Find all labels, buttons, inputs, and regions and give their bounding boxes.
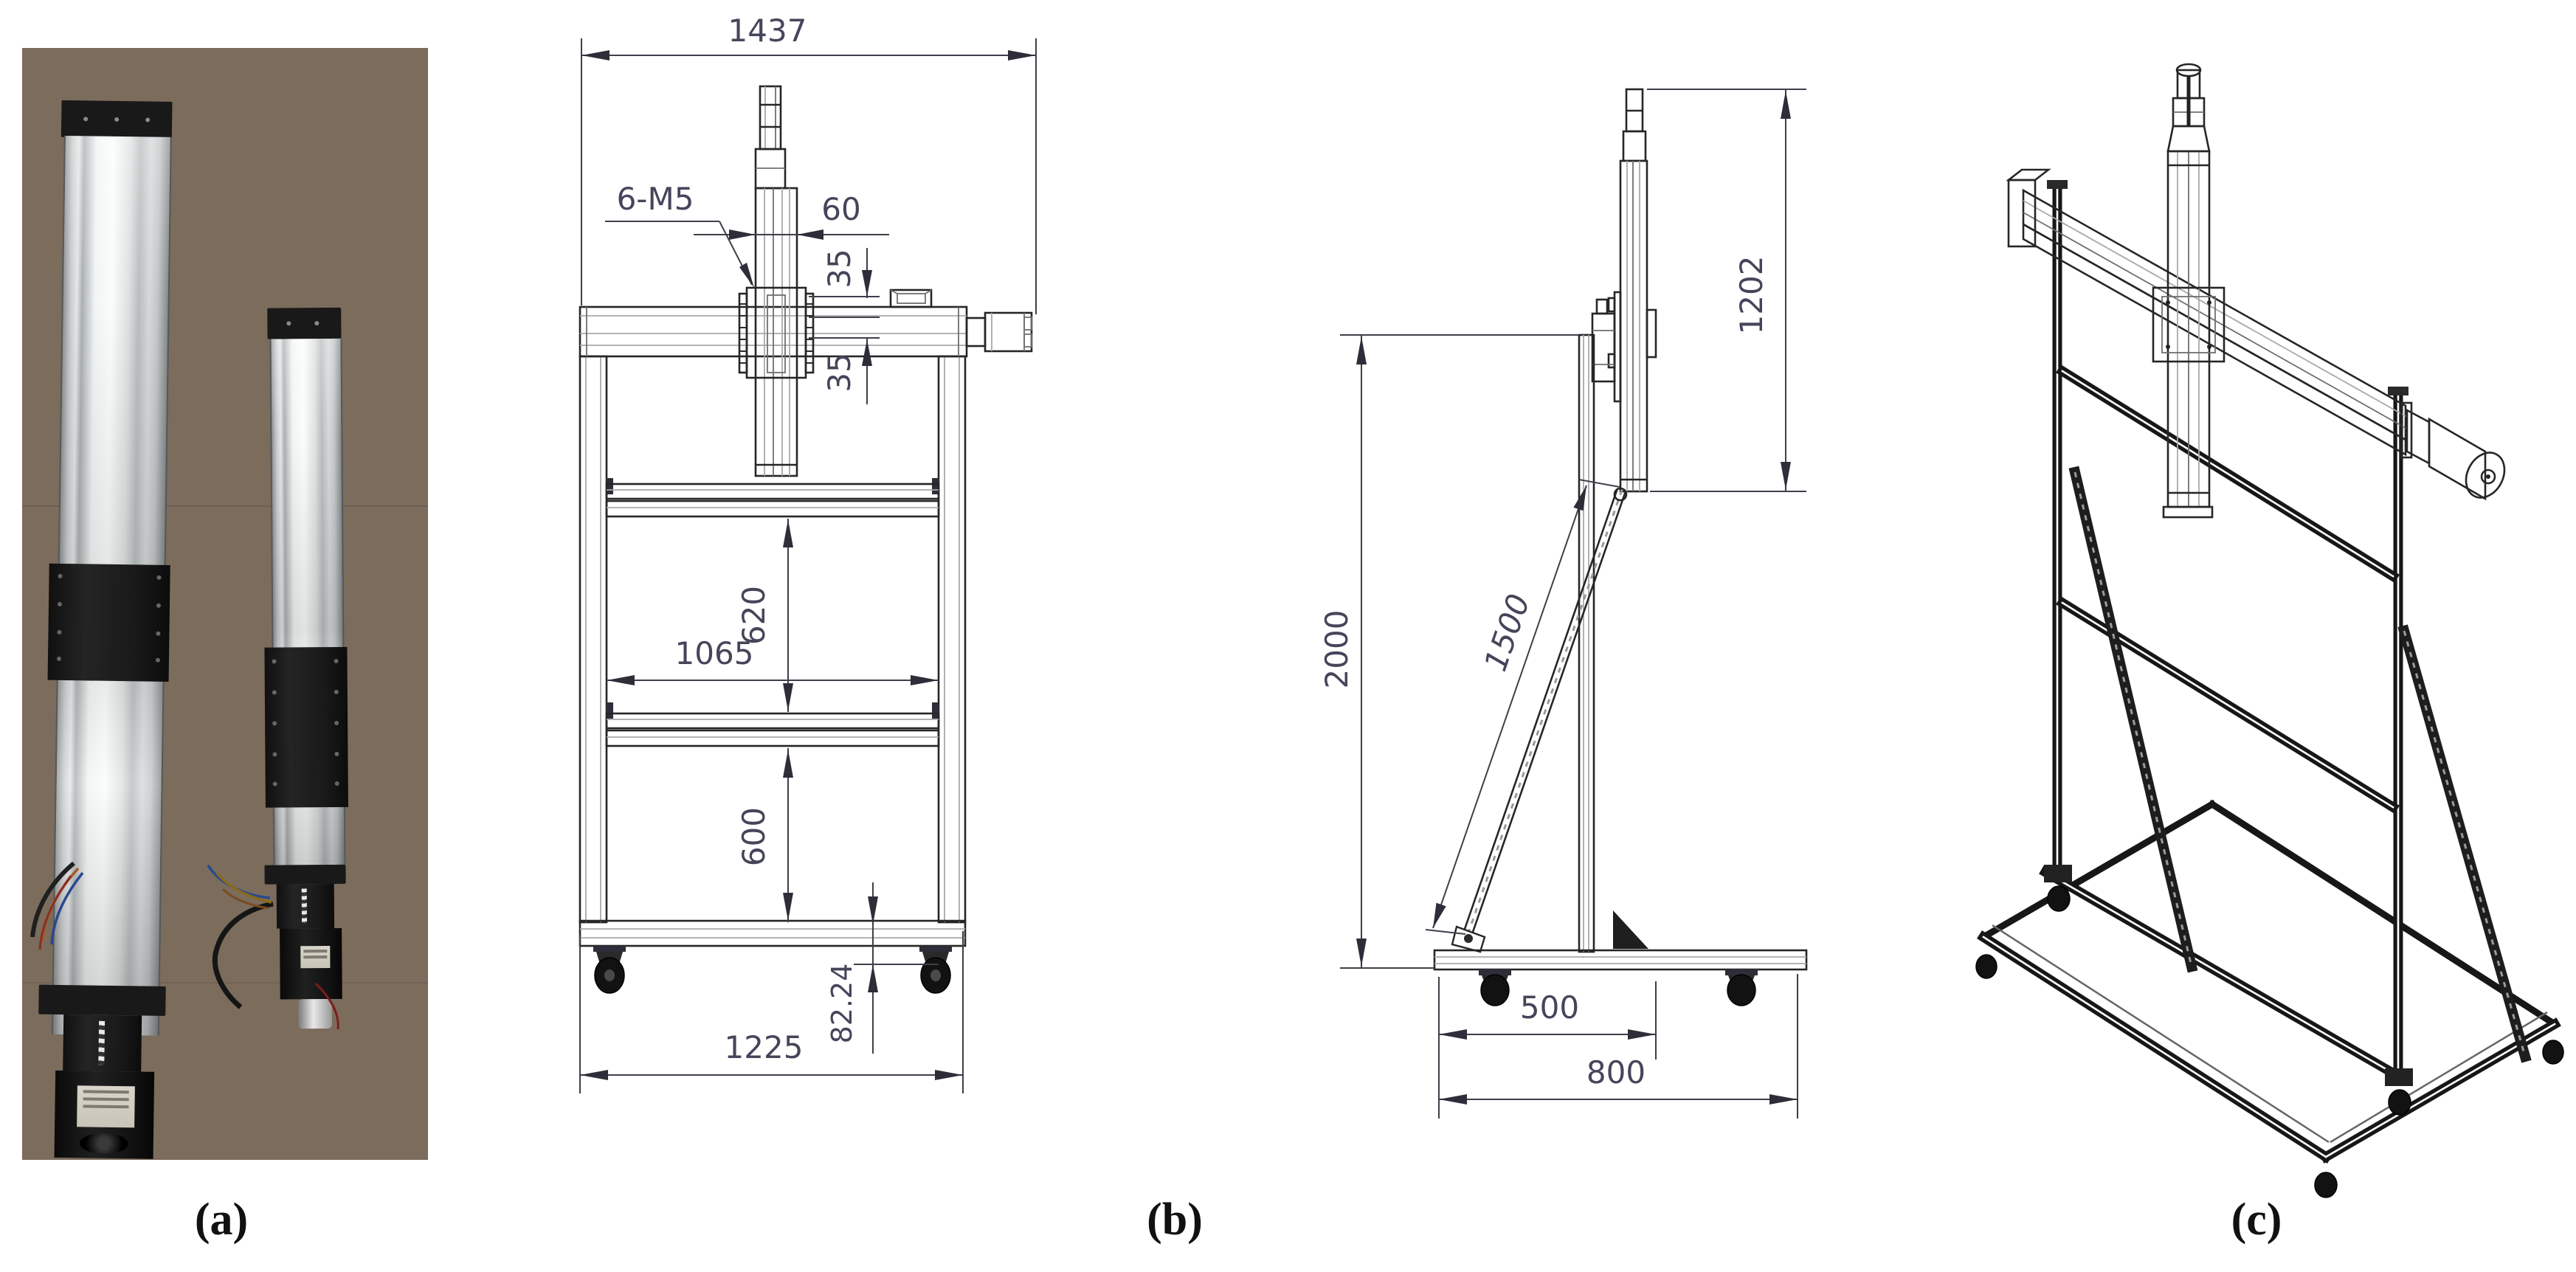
dim-inner-width: 1065 bbox=[607, 635, 939, 685]
front-carriage-block bbox=[739, 288, 813, 378]
panel-label-b: (b) bbox=[953, 1194, 1396, 1246]
dim-flange-top: 35 bbox=[809, 248, 880, 338]
isometric-render bbox=[1948, 44, 2576, 1225]
dim-lower-bay: 600 bbox=[736, 748, 793, 922]
beam-top-tab bbox=[891, 290, 931, 307]
side-brace bbox=[1452, 488, 1626, 952]
dim-flange-bottom: 35 bbox=[821, 338, 872, 404]
iso-left-post bbox=[2044, 180, 2072, 911]
front-bottom-beam bbox=[580, 921, 965, 946]
dim-overall-height: 2000 bbox=[1319, 335, 1579, 968]
dim-upper-bay: 620 bbox=[736, 519, 793, 712]
dim-text-60: 60 bbox=[821, 191, 860, 227]
dim-text-1225: 1225 bbox=[725, 1029, 804, 1065]
front-view: 1437 6-M5 60 35 35 bbox=[580, 13, 1036, 1093]
dim-front-depth: 500 bbox=[1439, 977, 1656, 1060]
panel-label-a: (a) bbox=[0, 1194, 443, 1246]
iso-z-actuator bbox=[2153, 64, 2224, 517]
iso-right-post bbox=[2385, 387, 2413, 1115]
panel-label-c: (c) bbox=[2035, 1194, 2478, 1246]
side-post bbox=[1579, 335, 1594, 952]
photo-linear-actuators bbox=[22, 48, 428, 1160]
iso-x-motor bbox=[2407, 410, 2512, 505]
dim-text-600: 600 bbox=[736, 807, 772, 866]
side-gusset bbox=[1613, 910, 1648, 949]
front-caster-right bbox=[919, 946, 952, 993]
side-base bbox=[1340, 950, 1806, 969]
dimension-drawing: 1437 6-M5 60 35 35 bbox=[553, 0, 1860, 1151]
dim-text-500: 500 bbox=[1520, 989, 1579, 1026]
dim-text-1500: 1500 bbox=[1477, 590, 1537, 676]
dim-total-width: 1437 bbox=[581, 13, 1036, 314]
dim-rail-width: 60 bbox=[694, 191, 889, 240]
iso-mid-beams bbox=[2062, 371, 2393, 807]
dim-text-800: 800 bbox=[1586, 1054, 1646, 1090]
side-vertical-rail bbox=[1609, 89, 1656, 491]
front-mid-beam-upper bbox=[607, 484, 939, 516]
side-caster-rear bbox=[1725, 969, 1758, 1006]
dim-text-1065: 1065 bbox=[675, 635, 754, 671]
dim-text-2000: 2000 bbox=[1319, 610, 1355, 689]
dim-brace-length: 1500 bbox=[1426, 480, 1620, 934]
dim-text-6M5: 6-M5 bbox=[617, 181, 694, 217]
iso-braces bbox=[2075, 472, 2525, 1057]
front-caster-left bbox=[593, 946, 626, 993]
side-view: 1202 2000 1500 500 bbox=[1319, 89, 1806, 1119]
dim-text-35b: 35 bbox=[821, 353, 857, 392]
side-caster-front bbox=[1479, 969, 1511, 1006]
front-mid-beam-lower bbox=[607, 713, 939, 746]
dim-vertical-rail: 1202 bbox=[1647, 89, 1806, 491]
dim-base-width: 1225 bbox=[580, 931, 963, 1093]
front-vertical-rail bbox=[756, 86, 797, 476]
motor-wires bbox=[22, 48, 428, 1160]
front-motor bbox=[967, 313, 1032, 351]
dim-text-1437: 1437 bbox=[728, 13, 807, 49]
dim-text-1202: 1202 bbox=[1733, 256, 1769, 335]
dim-text-8224: 82.24 bbox=[826, 964, 858, 1044]
dim-text-35a: 35 bbox=[821, 249, 857, 288]
